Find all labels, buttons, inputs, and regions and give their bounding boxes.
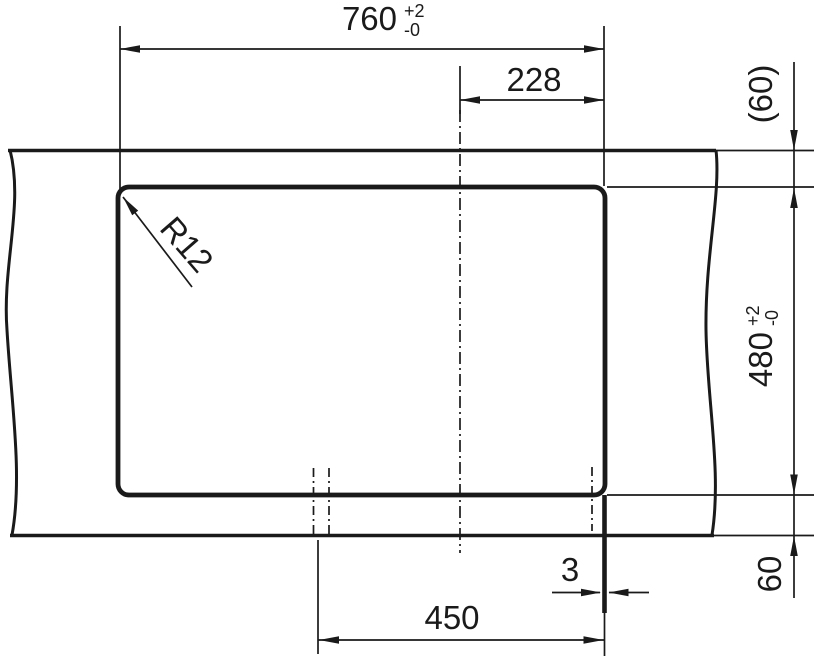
dim-text-3: 3 [561, 551, 579, 588]
dim-text-760: 760 [342, 0, 397, 37]
arrowhead-3-left [581, 589, 601, 597]
dim-text-228: 228 [506, 61, 561, 98]
dim-text-60ref: (60) [742, 65, 779, 124]
arrowhead-760-right [584, 45, 604, 53]
arrowhead-228-right [584, 96, 604, 104]
arrowhead-760-left [120, 45, 140, 53]
dim-text-480-group: 480 +2 -0 [742, 305, 782, 387]
dim-text-480-tol-minus: -0 [762, 310, 782, 326]
dim-text-760-tol-plus: +2 [404, 1, 425, 21]
arrowhead-450-left [319, 636, 339, 644]
dim-text-r12-group: R12 [153, 209, 221, 279]
arrowhead-228-left [460, 96, 480, 104]
arrowhead-450-right [584, 636, 604, 644]
arrowhead-60ref-down [790, 130, 798, 150]
drawing-canvas: 760 +2 -0 228 (60) 480 +2 -0 60 3 450 R1… [0, 0, 814, 660]
dim-text-60-bottom: 60 [751, 556, 788, 593]
arrowhead-480-top-up [790, 188, 798, 208]
arrowhead-60-bottom-up [790, 536, 798, 556]
dim-text-760-tol-minus: -0 [404, 20, 420, 40]
dim-text-480-tol-plus: +2 [743, 305, 763, 326]
worktop-right-break-line [706, 150, 717, 535]
arrowhead-3-right [609, 589, 629, 597]
arrowhead-480-bottom-down [790, 475, 798, 495]
dim-text-480: 480 [742, 332, 779, 387]
worktop-left-break-line [6, 150, 16, 535]
cutout-dimension-drawing: 760 +2 -0 228 (60) 480 +2 -0 60 3 450 R1… [0, 0, 814, 660]
dim-text-60-bottom-group: 60 [751, 556, 788, 593]
dim-text-450: 450 [424, 599, 479, 636]
dim-text-60ref-group: (60) [742, 65, 779, 124]
dim-text-r12: R12 [153, 209, 221, 279]
